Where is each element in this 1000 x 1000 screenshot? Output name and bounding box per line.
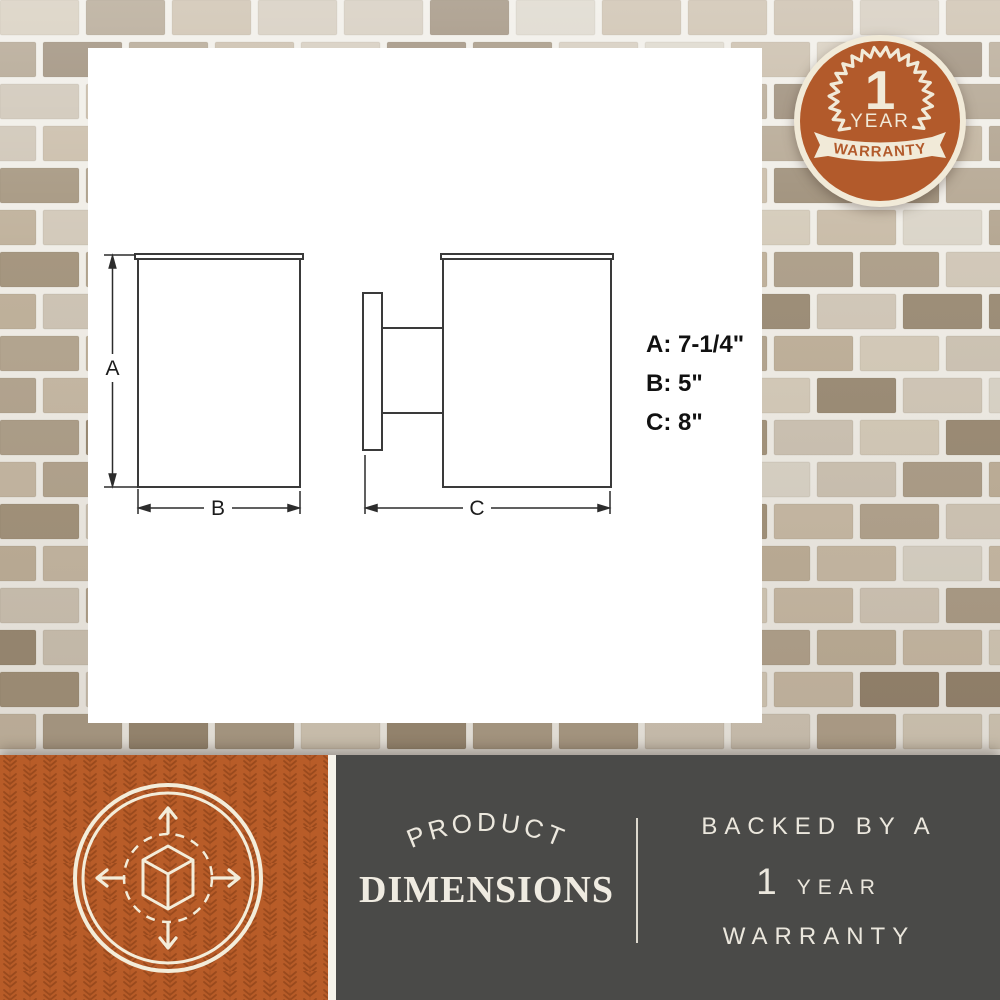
info-banner: PRODUCT DIMENSIONS BACKED BY A 1 YEAR WA… bbox=[0, 755, 1000, 1000]
warranty-label: WARRANTY bbox=[723, 923, 915, 951]
dimension-values: A: 7-1/4" B: 5" C: 8" bbox=[646, 331, 744, 436]
dim-label-c: C bbox=[469, 497, 484, 520]
backed-by-label: BACKED BY A bbox=[701, 813, 936, 841]
svg-text:PRODUCT: PRODUCT bbox=[402, 807, 572, 854]
one-year-line: 1 YEAR bbox=[756, 861, 882, 903]
dim-a-arrow-down bbox=[109, 474, 116, 486]
year-label: YEAR bbox=[797, 876, 882, 900]
dim-value-b: B: 5" bbox=[646, 370, 703, 397]
product-dimension-drawing: A B C A: 7-1/4" B: 5" C: 8" bbox=[88, 48, 762, 723]
dimensions-icon-panel bbox=[0, 755, 328, 1000]
warranty-badge: 1 YEAR WARRANTY bbox=[792, 33, 968, 209]
badge-year-label: YEAR bbox=[850, 111, 910, 132]
mount-arm bbox=[382, 328, 443, 413]
dim-line-c bbox=[365, 455, 610, 514]
dim-c-arrow-right bbox=[598, 505, 609, 512]
warranty-statement: BACKED BY A 1 YEAR WARRANTY bbox=[638, 813, 1000, 951]
dim-label-a: A bbox=[105, 357, 119, 380]
product-arch-label: PRODUCT bbox=[372, 801, 602, 861]
dim-value-a: A: 7-1/4" bbox=[646, 331, 744, 358]
dim-a-arrow-up bbox=[109, 256, 116, 268]
diagram-panel: A B C A: 7-1/4" B: 5" C: 8" bbox=[88, 48, 762, 723]
dim-value-c: C: 8" bbox=[646, 409, 703, 436]
panel-divider bbox=[328, 755, 336, 1000]
product-dimensions-title: PRODUCT DIMENSIONS bbox=[336, 801, 637, 909]
dimension-cube-icon bbox=[0, 755, 328, 1000]
side-view-drawing bbox=[363, 254, 613, 487]
dim-c-arrow-left bbox=[366, 505, 377, 512]
banner-content-panel: PRODUCT DIMENSIONS BACKED BY A 1 YEAR WA… bbox=[336, 755, 1000, 1000]
dim-c-extension-lines bbox=[365, 455, 610, 514]
dim-label-b: B bbox=[211, 497, 225, 520]
cube-expand-emblem bbox=[75, 785, 261, 971]
dim-b-arrow-right bbox=[288, 505, 299, 512]
year-number: 1 bbox=[756, 861, 777, 903]
front-view-drawing bbox=[135, 254, 303, 487]
product-arch-text: PRODUCT bbox=[402, 807, 572, 854]
dim-b-arrow-left bbox=[139, 505, 150, 512]
wall-mount-plate bbox=[363, 293, 382, 450]
dimensions-label: DIMENSIONS bbox=[336, 871, 637, 909]
side-body bbox=[443, 259, 611, 487]
front-body bbox=[138, 259, 300, 487]
